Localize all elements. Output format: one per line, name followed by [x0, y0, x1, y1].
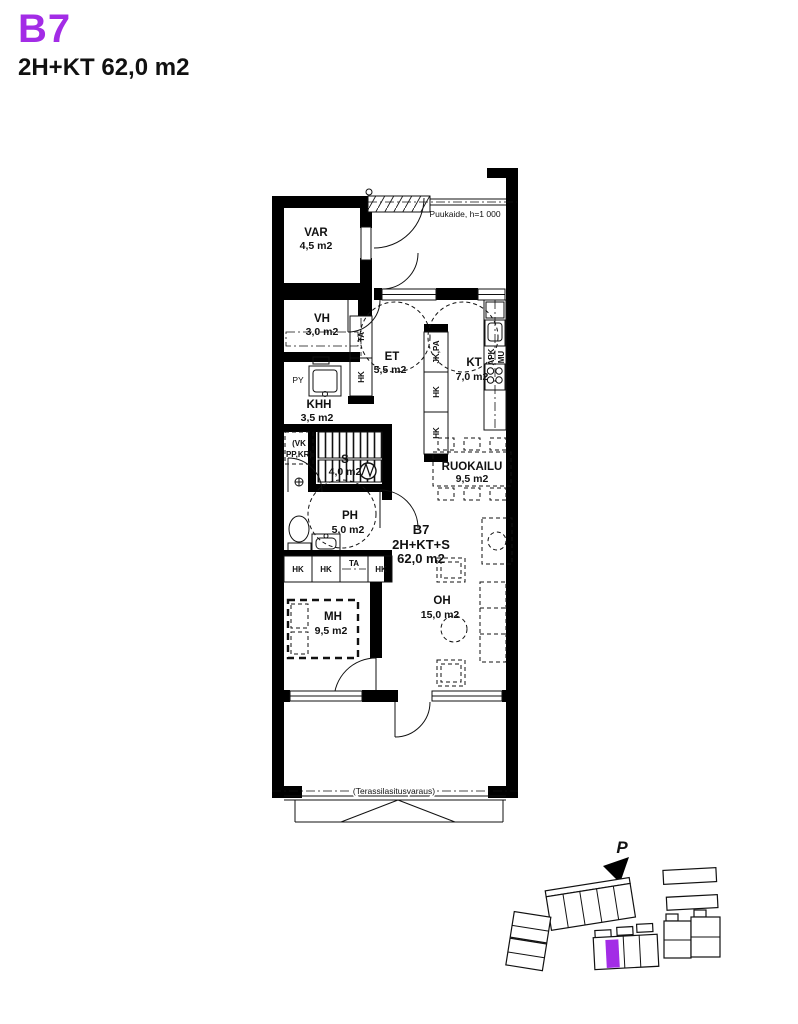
- cabinet-hk-3-label: HK: [432, 427, 441, 439]
- room-oh-name: OH: [433, 595, 450, 607]
- wall-mid-horizontal: [284, 424, 392, 432]
- site-plan: P: [506, 838, 720, 971]
- washbasin-tap: [324, 534, 328, 538]
- porch-door-arc-2: [382, 253, 418, 289]
- site-slab-1: [663, 868, 717, 885]
- dining-chair-3: [490, 438, 506, 450]
- wall-bottom-seg3: [502, 690, 518, 702]
- room-mh: MH 9,5 m2: [288, 582, 382, 700]
- terrace-wall-left: [272, 702, 284, 798]
- closet-row-hk-1: HK: [292, 565, 304, 574]
- room-var-name: VAR: [304, 227, 328, 239]
- wall-top-right-stub: [487, 168, 518, 178]
- wall-bottom-seg2: [362, 690, 398, 702]
- wall-left: [272, 196, 284, 702]
- room-ph-name: PH: [342, 510, 358, 522]
- pillow-1: [291, 604, 308, 628]
- dishwasher-label: APK: [487, 348, 496, 365]
- room-khh-name: KHH: [307, 399, 332, 411]
- oven-label: MU: [497, 351, 506, 364]
- site-building-middle: [545, 878, 635, 931]
- entry-ramp-hatch: [368, 196, 430, 212]
- railing-post: [366, 189, 372, 195]
- closet-row-hk-2: HK: [320, 565, 332, 574]
- floorplan-drawing: Puukaide, h=1 000 VAR 4,5 m2 VH 3,0 m2: [0, 0, 798, 1024]
- wall-mh-oh: [370, 582, 382, 658]
- room-oh-area: 15,0 m2: [421, 609, 460, 621]
- site-building-right-blocks: [664, 910, 720, 958]
- sofa: [480, 582, 506, 662]
- laundry-reservation-line1: (VK: [292, 439, 306, 448]
- room-vh-name: VH: [314, 313, 330, 325]
- room-sauna-name: S: [341, 454, 349, 466]
- terrace-door-arc: [395, 702, 430, 737]
- site-roof-4: [666, 914, 678, 921]
- wall-right: [506, 168, 518, 705]
- var-door: [361, 227, 371, 260]
- burner-4: [496, 377, 502, 383]
- dining-chair-5: [464, 488, 480, 500]
- room-et-name: ET: [385, 351, 400, 363]
- closet-column-kitchen: JK,PA HK HK: [424, 324, 448, 462]
- cabinet-hk-2-label: HK: [432, 386, 441, 398]
- room-sauna-area: 4,0 m2: [329, 466, 362, 478]
- closet-ta-label: TA: [357, 332, 366, 342]
- wall-var-top: [272, 196, 372, 208]
- sauna-bench-upper: [318, 432, 382, 458]
- south-wall: [272, 690, 518, 737]
- pillow-2: [291, 632, 308, 654]
- site-roof-2: [617, 927, 633, 936]
- toilet-bowl: [289, 516, 309, 542]
- unit-label-id: B7: [413, 522, 430, 537]
- site-building-right-slabs: [663, 868, 718, 911]
- room-var-area: 4,5 m2: [300, 240, 333, 252]
- floorplan-page: B7 2H+KT 62,0 m2: [0, 0, 798, 1024]
- burner-2: [496, 368, 502, 374]
- armchair-seat: [488, 532, 506, 550]
- entrance-porch: Puukaide, h=1 000: [366, 189, 517, 300]
- dining-chair-6: [490, 488, 506, 500]
- site-building-left: [506, 912, 551, 971]
- dining-chair-1: [438, 438, 454, 450]
- room-khh-area: 3,5 m2: [301, 412, 334, 424]
- wall-var-right-lower: [360, 258, 372, 288]
- highlighted-unit-marker: [605, 939, 619, 968]
- railing-label: Puukaide, h=1 000: [429, 209, 500, 219]
- closet-row-hk-3: HK: [375, 565, 387, 574]
- wall-bottom-seg1: [272, 690, 290, 702]
- dining-chair-4: [438, 488, 454, 500]
- wall-top-seg2: [436, 288, 478, 300]
- wall-stub-vh: [358, 300, 372, 316]
- garden-step-diag-1: [341, 800, 398, 822]
- garden-step-diag-2: [398, 800, 455, 822]
- site-slab-2: [666, 895, 718, 911]
- wall-sauna-left: [308, 432, 316, 492]
- kitchen-counter: APK MU: [484, 300, 506, 430]
- room-et-area: 5,5 m2: [374, 364, 407, 376]
- room-var: VAR 4,5 m2: [300, 227, 333, 252]
- wall-stub-jk-top: [424, 324, 448, 332]
- north-label: P: [616, 838, 628, 857]
- wall-closet-top: [284, 550, 392, 556]
- site-roof-5: [694, 910, 706, 917]
- floor-plan: Puukaide, h=1 000 VAR 4,5 m2 VH 3,0 m2: [272, 168, 518, 822]
- room-mh-name: MH: [324, 611, 342, 623]
- site-building-left-upper: [510, 912, 551, 943]
- room-mh-area: 9,5 m2: [315, 625, 348, 637]
- wall-stub-column: [348, 396, 374, 404]
- closet-row: HK HK TA HK: [284, 550, 392, 582]
- lounge-chair-2-seat: [441, 664, 461, 682]
- room-kt: KT 7,0 m2 APK MU: [428, 300, 506, 430]
- room-khh: PY KHH 3,5 m2: [292, 357, 341, 424]
- washing-machine-drum: [313, 370, 337, 392]
- dining-area: RUOKAILU 9,5 m2: [433, 438, 511, 500]
- terrace-wall-right: [506, 705, 518, 798]
- site-building-highlight-body: [593, 934, 659, 969]
- site-building-left-lower: [506, 938, 547, 970]
- room-kt-name: KT: [466, 357, 481, 369]
- closet-hk-1-label: HK: [357, 371, 366, 383]
- wall-top-seg1: [374, 288, 382, 300]
- dining-chair-2: [464, 438, 480, 450]
- terrace-glazing-label: (Terassilasitusvaraus): [353, 786, 435, 796]
- site-building-highlight: [593, 923, 659, 969]
- room-dining-area: 9,5 m2: [456, 473, 489, 485]
- site-roof-3: [637, 924, 653, 933]
- room-vh: VH 3,0 m2: [284, 313, 360, 362]
- closet-row-ta: TA: [349, 559, 359, 568]
- unit-label-type: 2H+KT+S: [392, 537, 450, 552]
- washer-label: PY: [292, 375, 304, 385]
- room-dining-name: RUOKAILU: [442, 461, 503, 473]
- wall-var-bottom: [272, 283, 372, 300]
- unit-label: B7 2H+KT+S 62,0 m2: [392, 522, 450, 566]
